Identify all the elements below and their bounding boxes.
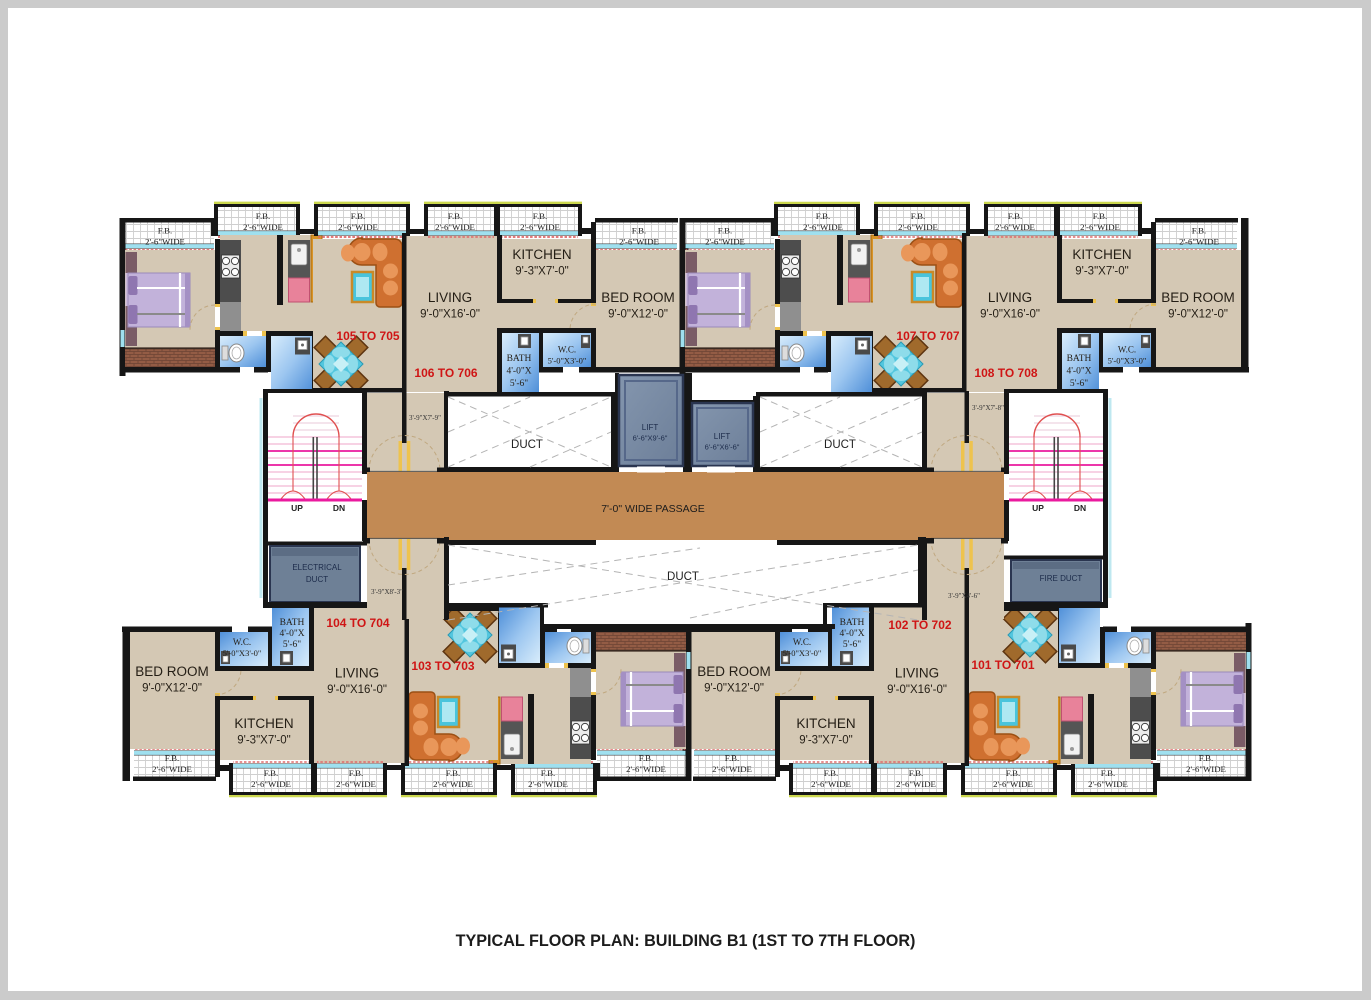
svg-text:3'-9"X7'-9": 3'-9"X7'-9" [409,414,441,422]
svg-text:9'-3"X7'-0": 9'-3"X7'-0" [237,735,290,747]
svg-text:DUCT: DUCT [306,575,328,584]
svg-text:BED ROOM: BED ROOM [601,290,675,305]
svg-text:DUCT: DUCT [824,439,856,451]
svg-text:9'-0"X12'-0": 9'-0"X12'-0" [1168,309,1228,321]
svg-text:2'-6"WIDE: 2'-6"WIDE [1088,779,1128,789]
svg-text:TYPICAL FLOOR PLAN: BUILDING B: TYPICAL FLOOR PLAN: BUILDING B1 (1ST TO … [456,932,916,950]
svg-text:102 TO 702: 102 TO 702 [888,618,951,632]
svg-text:KITCHEN: KITCHEN [1072,247,1131,262]
svg-text:9'-0"X16'-0": 9'-0"X16'-0" [420,309,480,321]
svg-text:5'-6": 5'-6" [283,640,301,650]
svg-text:2'-6"WIDE: 2'-6"WIDE [152,764,192,774]
svg-text:F.B.: F.B. [909,768,923,778]
svg-text:W.C.: W.C. [558,345,576,355]
svg-text:F.B.: F.B. [632,226,646,236]
svg-text:BED ROOM: BED ROOM [1161,290,1235,305]
svg-text:BATH: BATH [840,618,865,628]
svg-text:F.B.: F.B. [1199,753,1213,763]
svg-text:UP: UP [291,503,303,513]
svg-text:4'-0"X: 4'-0"X [1066,367,1091,377]
svg-text:ELECTRICAL: ELECTRICAL [292,563,342,572]
svg-text:2'-6"WIDE: 2'-6"WIDE [705,237,745,247]
svg-text:5'-6": 5'-6" [843,640,861,650]
svg-text:6'-6"X6'-6": 6'-6"X6'-6" [705,443,740,452]
svg-text:2'-6"WIDE: 2'-6"WIDE [433,779,473,789]
svg-text:BED ROOM: BED ROOM [135,664,209,679]
svg-text:W.C.: W.C. [233,637,251,647]
svg-text:9'-0"X16'-0": 9'-0"X16'-0" [327,684,387,696]
svg-text:F.B.: F.B. [448,211,462,221]
svg-text:FIRE DUCT: FIRE DUCT [1040,574,1083,583]
svg-text:F.B.: F.B. [1008,211,1022,221]
svg-text:LIVING: LIVING [988,290,1032,305]
svg-text:4'-0"X: 4'-0"X [506,367,531,377]
svg-text:BATH: BATH [1067,354,1092,364]
svg-text:2'-6"WIDE: 2'-6"WIDE [520,222,560,232]
svg-text:F.B.: F.B. [816,211,830,221]
svg-text:F.B.: F.B. [911,211,925,221]
svg-text:2'-6"WIDE: 2'-6"WIDE [243,222,283,232]
svg-text:2'-6"WIDE: 2'-6"WIDE [1179,237,1219,247]
svg-text:9'-0"X12'-0": 9'-0"X12'-0" [608,309,668,321]
svg-text:2'-6"WIDE: 2'-6"WIDE [995,222,1035,232]
svg-text:4'-0"X: 4'-0"X [839,629,864,639]
svg-text:2'-6"WIDE: 2'-6"WIDE [1186,764,1226,774]
svg-text:F.B.: F.B. [351,211,365,221]
svg-text:KITCHEN: KITCHEN [512,247,571,262]
svg-text:F.B.: F.B. [1006,768,1020,778]
svg-text:DN: DN [1074,503,1086,513]
svg-text:BATH: BATH [507,354,532,364]
svg-text:2'-6"WIDE: 2'-6"WIDE [145,237,185,247]
svg-text:F.B.: F.B. [725,753,739,763]
svg-text:W.C.: W.C. [1118,345,1136,355]
svg-text:5'-0"X3'-0": 5'-0"X3'-0" [223,648,262,658]
svg-text:KITCHEN: KITCHEN [234,716,293,731]
svg-text:LIVING: LIVING [895,666,939,681]
svg-text:2'-6"WIDE: 2'-6"WIDE [338,222,378,232]
svg-text:2'-6"WIDE: 2'-6"WIDE [528,779,568,789]
svg-text:F.B.: F.B. [824,768,838,778]
svg-text:F.B.: F.B. [158,226,172,236]
svg-text:4'-0"X: 4'-0"X [279,629,304,639]
svg-text:2'-6"WIDE: 2'-6"WIDE [435,222,475,232]
svg-text:5'-0"X3'-0": 5'-0"X3'-0" [1108,356,1147,366]
svg-text:LIVING: LIVING [335,666,379,681]
svg-text:108 TO 708: 108 TO 708 [974,366,1037,380]
svg-text:LIVING: LIVING [428,290,472,305]
svg-text:5'-6": 5'-6" [510,379,528,389]
svg-text:2'-6"WIDE: 2'-6"WIDE [896,779,936,789]
svg-text:F.B.: F.B. [1093,211,1107,221]
svg-text:3'-9"X8'-3": 3'-9"X8'-3" [371,588,403,596]
svg-text:2'-6"WIDE: 2'-6"WIDE [993,779,1033,789]
svg-text:F.B.: F.B. [718,226,732,236]
svg-text:2'-6"WIDE: 2'-6"WIDE [803,222,843,232]
svg-text:2'-6"WIDE: 2'-6"WIDE [898,222,938,232]
svg-text:F.B.: F.B. [1192,226,1206,236]
svg-text:9'-3"X7'-0": 9'-3"X7'-0" [799,735,852,747]
svg-text:6'-6"X9'-6": 6'-6"X9'-6" [633,434,668,443]
svg-text:2'-6"WIDE: 2'-6"WIDE [811,779,851,789]
svg-text:5'-0"X3'-0": 5'-0"X3'-0" [548,356,587,366]
svg-text:2'-6"WIDE: 2'-6"WIDE [712,764,752,774]
svg-text:F.B.: F.B. [639,753,653,763]
svg-text:KITCHEN: KITCHEN [796,716,855,731]
svg-text:W.C.: W.C. [793,637,811,647]
svg-text:DUCT: DUCT [667,571,699,583]
svg-text:2'-6"WIDE: 2'-6"WIDE [1080,222,1120,232]
svg-text:2'-6"WIDE: 2'-6"WIDE [336,779,376,789]
svg-text:3'-9"X7'-8": 3'-9"X7'-8" [972,404,1004,412]
svg-text:9'-0"X16'-0": 9'-0"X16'-0" [887,684,947,696]
svg-text:103 TO 703: 103 TO 703 [411,659,474,673]
svg-text:3'-9"X4'-6": 3'-9"X4'-6" [948,592,980,600]
svg-text:F.B.: F.B. [446,768,460,778]
svg-text:2'-6"WIDE: 2'-6"WIDE [626,764,666,774]
svg-text:BED ROOM: BED ROOM [697,664,771,679]
svg-text:F.B.: F.B. [541,768,555,778]
svg-text:F.B.: F.B. [533,211,547,221]
svg-text:9'-0"X16'-0": 9'-0"X16'-0" [980,309,1040,321]
svg-text:LIFT: LIFT [714,432,731,441]
svg-text:104 TO 704: 104 TO 704 [326,616,389,630]
svg-text:LIFT: LIFT [642,423,659,432]
svg-text:F.B.: F.B. [256,211,270,221]
svg-text:F.B.: F.B. [165,753,179,763]
svg-text:9'-0"X12'-0": 9'-0"X12'-0" [704,683,764,695]
svg-text:5'-6": 5'-6" [1070,379,1088,389]
svg-text:F.B.: F.B. [264,768,278,778]
svg-text:5'-0"X3'-0": 5'-0"X3'-0" [783,648,822,658]
svg-text:DUCT: DUCT [511,439,543,451]
svg-text:107 TO 707: 107 TO 707 [896,329,959,343]
svg-text:BATH: BATH [280,618,305,628]
svg-text:105 TO 705: 105 TO 705 [336,329,399,343]
svg-text:F.B.: F.B. [349,768,363,778]
svg-text:7'-0" WIDE PASSAGE: 7'-0" WIDE PASSAGE [601,503,705,515]
svg-text:9'-3"X7'-0": 9'-3"X7'-0" [515,266,568,278]
svg-text:F.B.: F.B. [1101,768,1115,778]
svg-text:UP: UP [1032,503,1044,513]
svg-text:9'-0"X12'-0": 9'-0"X12'-0" [142,683,202,695]
svg-text:106 TO 706: 106 TO 706 [414,366,477,380]
svg-text:DN: DN [333,503,345,513]
svg-text:9'-3"X7'-0": 9'-3"X7'-0" [1075,266,1128,278]
svg-text:2'-6"WIDE: 2'-6"WIDE [251,779,291,789]
svg-text:2'-6"WIDE: 2'-6"WIDE [619,237,659,247]
svg-text:101 TO 701: 101 TO 701 [971,658,1034,672]
